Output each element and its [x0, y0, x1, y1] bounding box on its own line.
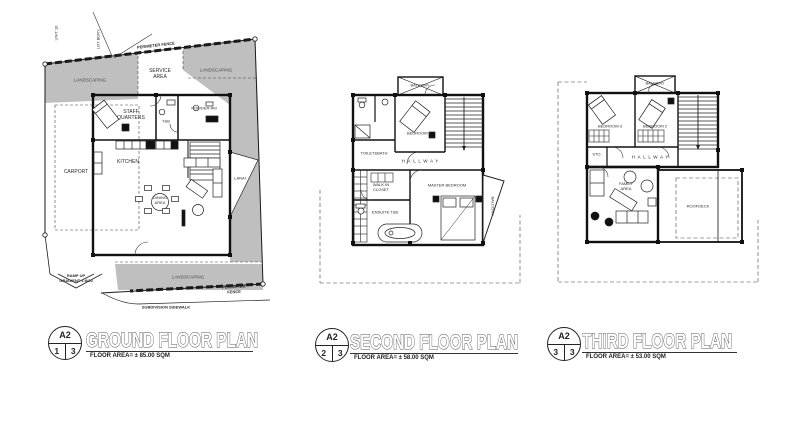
sheet-number: A2 — [548, 328, 580, 345]
room-label-balcony-right: BALCONY — [490, 196, 495, 215]
sheet-reference-bubble: A2 1 3 — [48, 326, 82, 360]
stairs — [678, 95, 718, 150]
room-label-hallway: HALLWAY — [629, 154, 671, 160]
sheet-number: A2 — [49, 327, 81, 344]
plan-index: 3 — [548, 345, 564, 361]
plan-title-text: SECOND FLOOR PLAN — [350, 331, 518, 354]
label-ramp: RAMP UP GRADIENT 1:8/20 — [59, 274, 92, 284]
staff-bed — [92, 100, 119, 128]
furniture — [588, 96, 674, 226]
plan-total: 3 — [65, 344, 82, 360]
label-subdivision-sidewalk: SUBDIVISION SIDEWALK — [142, 306, 190, 311]
room-label-roofdeck: ROOFDECK — [687, 205, 710, 210]
room-label-bedroom2: BEDROOM 2 — [643, 125, 667, 130]
floor-area-text: FLOOR AREA= ± 85.00 SQM — [90, 353, 170, 359]
room-label-carport: CARPORT — [64, 169, 88, 175]
room-label-landscaping-left: LANDSCAPING — [74, 77, 106, 82]
room-label-dining-area: DINING AREA — [153, 196, 167, 206]
room-label-ensuite-tb: ENSUITE T&B — [372, 211, 398, 216]
sheet-reference-bubble: A2 3 3 — [547, 327, 581, 361]
wardrobe-grid — [589, 130, 664, 142]
room-label-storage: STO. — [592, 153, 601, 158]
plan-index: 1 — [49, 344, 65, 360]
third-floor-drawing — [550, 70, 780, 305]
sheet-number: A2 — [316, 329, 348, 346]
sofa — [184, 158, 220, 167]
floor-area-text: FLOOR AREA= ± 58.00 SQM — [354, 355, 434, 361]
room-label-service-area: SERVICE AREA — [149, 68, 171, 80]
ground-floor-drawing — [38, 12, 270, 314]
second-floor-drawing — [315, 70, 535, 305]
plan-title-text: THIRD FLOOR PLAN — [582, 330, 732, 353]
room-label-walk-in-closet: WALK IN CLOSET — [373, 183, 389, 193]
room-label-staff-quarters: STAFF QUARTERS — [117, 109, 145, 121]
room-label-lanai: LANAI — [234, 177, 246, 182]
plan-total: 3 — [332, 346, 349, 362]
plan-index: 2 — [316, 346, 332, 362]
leader-lines — [93, 12, 152, 58]
plan-title: THIRD FLOOR PLAN — [582, 330, 772, 354]
room-label-balcony: BALCONY — [645, 82, 664, 87]
room-label-tb: T&B — [162, 120, 170, 125]
furniture — [92, 100, 222, 226]
title-rule — [350, 353, 518, 354]
label-perimeter-fence-bottom: PERIMETER FENCE — [216, 284, 252, 295]
room-label-landscaping-right: LANDSCAPING — [200, 67, 232, 72]
room-label-powder-rm: POWDER RM — [191, 107, 216, 112]
plan-title: SECOND FLOOR PLAN — [350, 331, 540, 355]
room-label-bedroom3: BEDROOM 3 — [598, 125, 622, 130]
room-label-family-area: FAMILY AREA — [619, 182, 633, 192]
bedroom3-bed — [588, 96, 615, 125]
title-rule — [582, 352, 737, 353]
second-floor-plan: BALCONY TOILET&BATH BEDROOM 1 HALLWAY WA… — [315, 70, 535, 305]
plan-total: 3 — [564, 345, 581, 361]
sheet-reference-bubble: A2 2 3 — [315, 328, 349, 362]
room-label-toilet-bath: TOILET&BATH — [361, 152, 388, 157]
floor-area-text: FLOOR AREA= ± 53.00 SQM — [586, 354, 666, 360]
room-label-master-bedroom: MASTER BEDROOM — [428, 184, 466, 189]
site-label-unit: UNIT 10 — [55, 26, 60, 41]
bedroom1-bed — [400, 101, 430, 133]
plan-title-text: GROUND FLOOR PLAN — [86, 329, 258, 352]
stairs — [445, 97, 483, 151]
room-label-bedroom1: BEDROOM 1 — [407, 132, 431, 137]
title-rule — [86, 351, 253, 352]
room-label-hallway: HALLWAY — [399, 158, 441, 164]
floor-plan-sheet: { "ground": { "labels": { "unit": "UNIT … — [0, 0, 798, 423]
room-label-landscaping-bottom: LANDSCAPING — [172, 274, 204, 279]
third-floor-plan: BALCONY BEDROOM 3 BEDROOM 2 HALLWAY STO.… — [550, 70, 780, 305]
room-label-balcony: BALCONY — [410, 84, 429, 89]
plan-title: GROUND FLOOR PLAN — [86, 329, 276, 353]
room-label-kitchen: KITCHEN — [117, 159, 139, 165]
site-label-lot-boundary: LOT BDRY. — [97, 29, 102, 49]
ground-floor-plan: UNIT 10 LOT BDRY. PERIMETER FENCE LANDSC… — [38, 12, 270, 314]
